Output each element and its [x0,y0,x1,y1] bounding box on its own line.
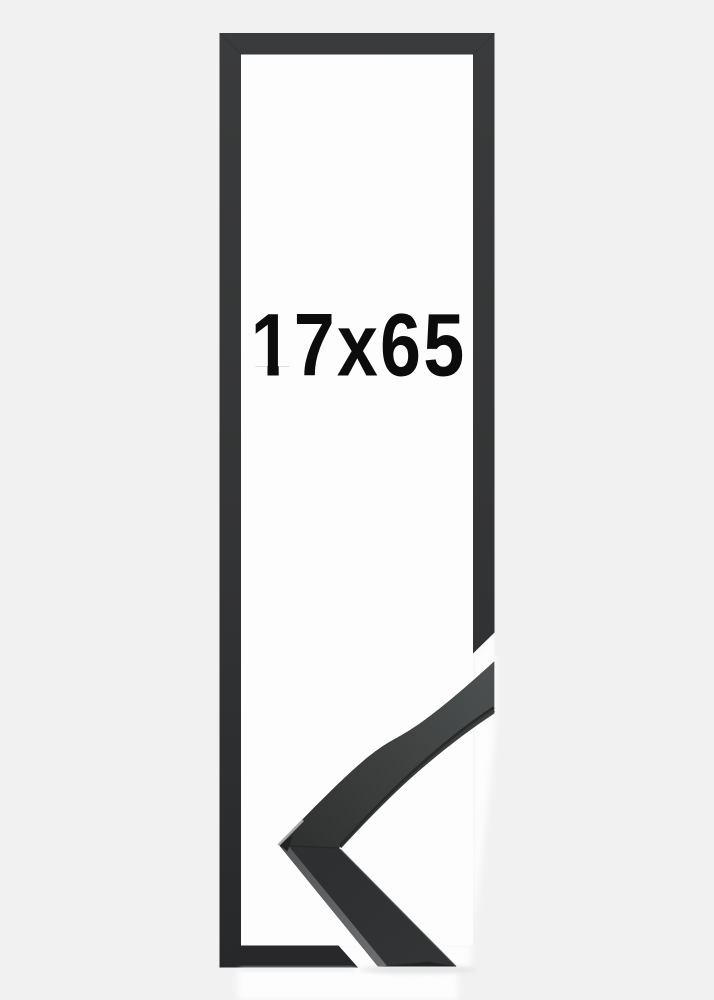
svg-text:17x65: 17x65 [251,296,467,395]
